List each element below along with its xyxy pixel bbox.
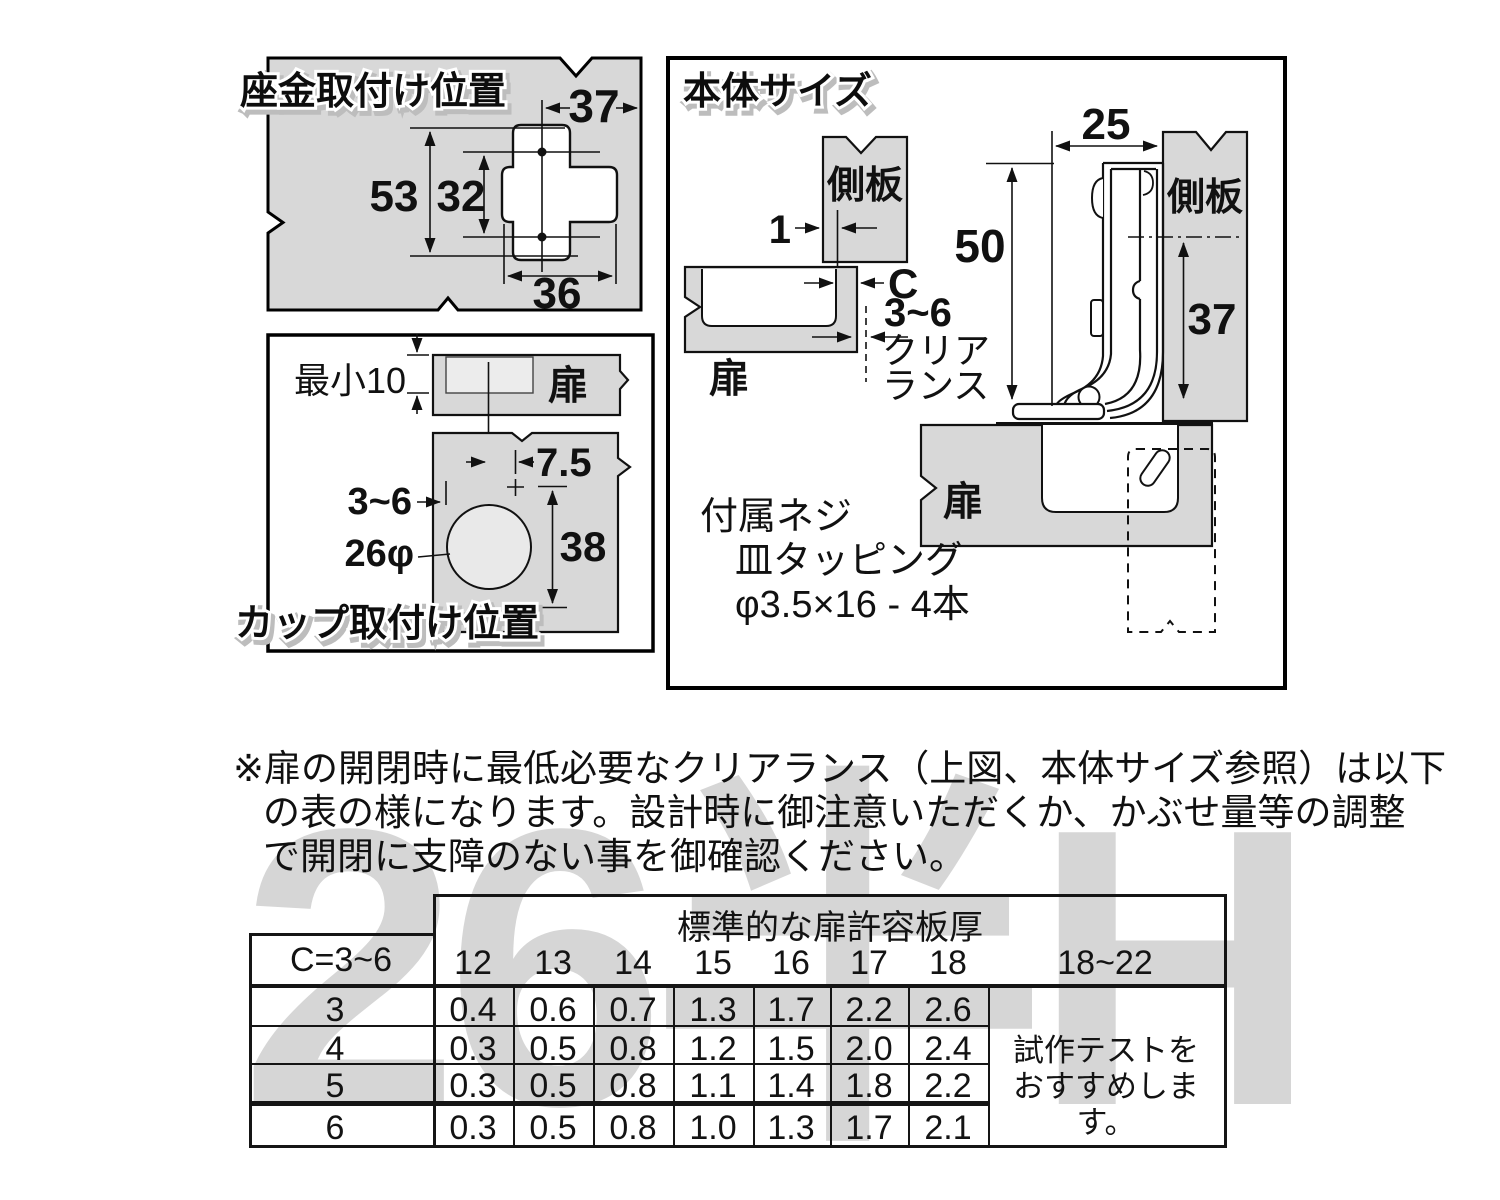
dim-overlay: 1: [769, 208, 791, 252]
dim-75: 7.5: [536, 441, 592, 485]
advisory-line-1: 試作テストを: [988, 1033, 1224, 1069]
screw-hole-bottom: [538, 233, 547, 242]
cell: 1.3: [673, 991, 753, 1030]
cell: 1.8: [829, 1067, 909, 1106]
screw-note-2: 皿タッピング: [735, 540, 963, 582]
hinge-spec-sheet: 26半H ※扉の開閉時に最低必要なクリアランス（上図、本体サイズ参照）は以下 の…: [0, 0, 1500, 1200]
col-header-16: 16: [761, 944, 821, 983]
table-header-divider: [249, 984, 1227, 988]
mount-screw-head: [1091, 300, 1103, 336]
plate-position-panel: 53 32 37 36 座金取付け位置 座金取付け位置: [240, 58, 641, 318]
col-header-17: 17: [839, 944, 899, 983]
cell: 0.8: [593, 1030, 673, 1069]
door-label-left: 扉: [709, 357, 749, 401]
cell: 1.4: [751, 1067, 831, 1106]
cell: 2.2: [829, 991, 909, 1030]
cell: 2.0: [829, 1030, 909, 1069]
side-panel-label-top: 側板: [826, 165, 903, 207]
cup-hole-circle: [447, 505, 531, 589]
cup-title: カップ取付け位置: [235, 603, 539, 645]
dim-cup-dia: 26φ: [345, 533, 414, 575]
dim-edge: 3~6: [348, 481, 412, 523]
table-header-title: 標準的な扉許容板厚: [433, 900, 1227, 949]
row-label: 5: [249, 1067, 421, 1106]
table-corner-top: [249, 933, 436, 936]
side-panel-right-rect: [1163, 132, 1247, 421]
min-edge-label: 最小10: [294, 360, 406, 401]
table-border-top: [433, 894, 1227, 897]
screw-hole-top: [538, 148, 547, 157]
row-label: 6: [249, 1109, 421, 1148]
diagrams: 53 32 37 36 座金取付け位置 座金取付け位置 扉 最小10: [0, 0, 1500, 760]
dim-38: 38: [560, 523, 607, 570]
table-corner-header: C=3~6: [249, 941, 433, 980]
col-header-14: 14: [603, 944, 663, 983]
cup-position-panel: 扉 最小10 7.5 3~6 26φ: [235, 334, 653, 651]
cell: 2.2: [908, 1067, 988, 1106]
note-line-2: の表の様になります。設計時に御注意いただくか、かぶせ量等の調整: [263, 792, 1406, 834]
dim-37: 37: [568, 80, 619, 132]
col-header-12: 12: [443, 944, 503, 983]
row-label: 3: [249, 991, 421, 1030]
cell: 1.0: [673, 1109, 753, 1148]
cell: 0.4: [433, 991, 513, 1030]
body-size-panel: 側板 1 扉 C 3~6 クリア ランス 側板: [668, 58, 1285, 688]
screw-note-3: φ3.5×16 - 4本: [735, 584, 970, 626]
clearance-table: 標準的な扉許容板厚 C=3~6 12 13 14 15 16 17 18 18~…: [249, 894, 1227, 1150]
adjust-screw-head: [1092, 178, 1103, 218]
cell: 0.7: [593, 991, 673, 1030]
cell: 2.6: [908, 991, 988, 1030]
col-header-18: 18: [918, 944, 978, 983]
cell: 1.1: [673, 1067, 753, 1106]
cell: 0.3: [433, 1030, 513, 1069]
cell: 2.4: [908, 1030, 988, 1069]
side-panel-label-right: 側板: [1166, 177, 1243, 219]
row-label: 4: [249, 1030, 421, 1069]
cell: 0.5: [513, 1030, 593, 1069]
col-header-13: 13: [523, 944, 583, 983]
note-line-3: で開閉に支障のない事を御確認ください。: [263, 836, 966, 878]
door-label: 扉: [548, 364, 588, 408]
cell: 0.8: [593, 1109, 673, 1148]
door-section-recess: [702, 269, 836, 326]
clearance-range: 3~6: [884, 291, 952, 335]
hinge-cup-flange: [1013, 404, 1104, 419]
cell: 0.3: [433, 1067, 513, 1106]
col-header-18-22: 18~22: [1045, 944, 1165, 983]
cup-edge-recess: [446, 357, 533, 393]
dim-32: 32: [437, 172, 486, 221]
cell: 1.3: [751, 1109, 831, 1148]
advisory-line-2: おすすめします。: [988, 1069, 1224, 1141]
cell: 1.2: [673, 1030, 753, 1069]
body-title: 本体サイズ: [683, 70, 872, 113]
cell: 1.7: [751, 991, 831, 1030]
screw-note-1: 付属ネジ: [700, 496, 852, 538]
plate-title: 座金取付け位置: [240, 70, 506, 113]
cell: 0.5: [513, 1109, 593, 1148]
col-header-15: 15: [683, 944, 743, 983]
cell: 0.6: [513, 991, 593, 1030]
dim-50: 50: [954, 220, 1005, 272]
cell: 2.1: [908, 1109, 988, 1148]
dim-25: 25: [1082, 100, 1131, 149]
cell: 0.8: [593, 1067, 673, 1106]
cell: 0.3: [433, 1109, 513, 1148]
cell: 1.7: [829, 1109, 909, 1148]
dim-36: 36: [533, 269, 582, 318]
clearance-label-2: ランス: [882, 365, 989, 406]
cell: 0.5: [513, 1067, 593, 1106]
dim-37-right: 37: [1188, 295, 1237, 344]
door-label-bottom: 扉: [943, 480, 983, 524]
cell: 1.5: [751, 1030, 831, 1069]
dim-53: 53: [370, 172, 419, 221]
advisory-cell: 試作テストを おすすめします。: [988, 1033, 1224, 1141]
